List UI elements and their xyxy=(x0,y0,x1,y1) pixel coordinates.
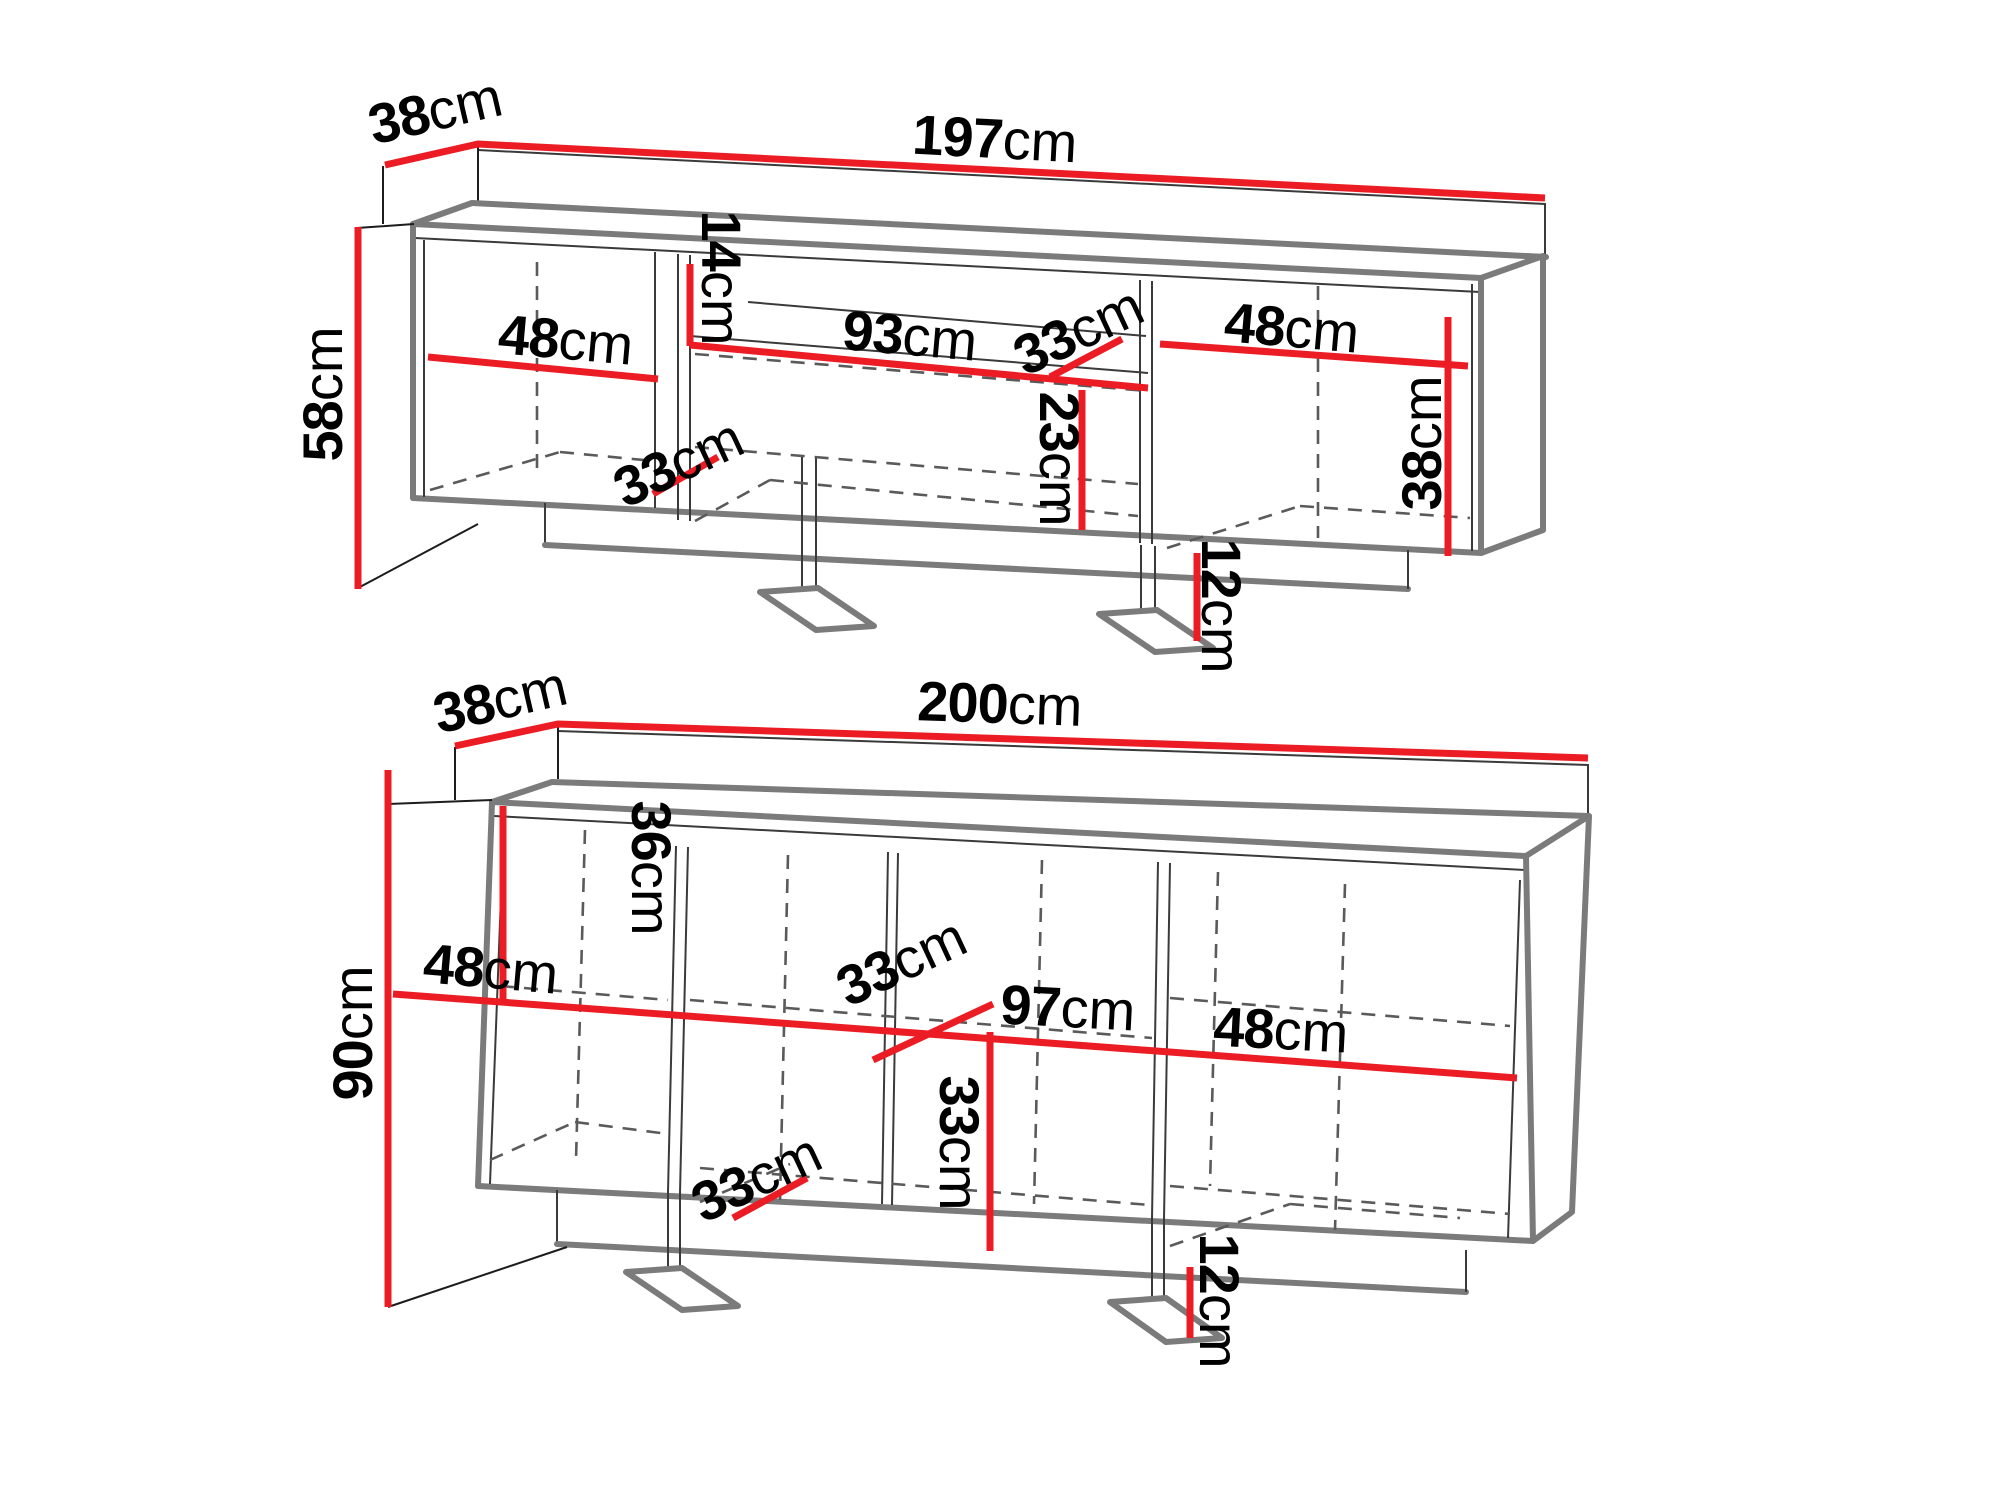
dim-sb-depth: 38cm xyxy=(427,653,573,745)
dim-tv-width: 197cm xyxy=(911,102,1079,174)
tv-stand-drawing: 38cm 197cm 58cm 48cm 14cm 93cm 33cm 48cm… xyxy=(291,64,1547,673)
dim-sb-lower-height: 33cm xyxy=(929,1076,992,1211)
dim-tv-niche-width: 93cm xyxy=(840,298,980,373)
diagram-canvas: 38cm 197cm 58cm 48cm 14cm 93cm 33cm 48cm… xyxy=(0,0,2000,1500)
dim-tv-right-height: 38cm xyxy=(1390,376,1453,511)
dim-sb-top-gap: 36cm xyxy=(621,801,684,936)
dim-tv-foot-height: 12cm xyxy=(1191,539,1254,674)
dim-sb-middle-width: 97cm xyxy=(999,972,1137,1042)
dim-sb-width: 200cm xyxy=(916,669,1083,738)
furniture-dimension-diagram: 38cm 197cm 58cm 48cm 14cm 93cm 33cm 48cm… xyxy=(0,0,2000,1500)
dim-sb-left-width: 48cm xyxy=(421,931,561,1006)
dim-tv-left-width: 48cm xyxy=(496,302,636,377)
dim-tv-shelf-gap: 14cm xyxy=(691,211,754,346)
dim-sb-foot-height: 12cm xyxy=(1189,1234,1252,1369)
sideboard-drawing: 38cm 200cm 90cm 36cm 48cm 33cm 97cm 48cm… xyxy=(321,653,1590,1368)
dim-sb-right-width: 48cm xyxy=(1212,994,1350,1064)
dim-tv-height: 58cm xyxy=(291,327,354,462)
dim-tv-right-width: 48cm xyxy=(1222,290,1362,365)
dim-sb-height: 90cm xyxy=(321,966,384,1101)
dim-tv-niche-height: 23cm xyxy=(1029,392,1092,527)
